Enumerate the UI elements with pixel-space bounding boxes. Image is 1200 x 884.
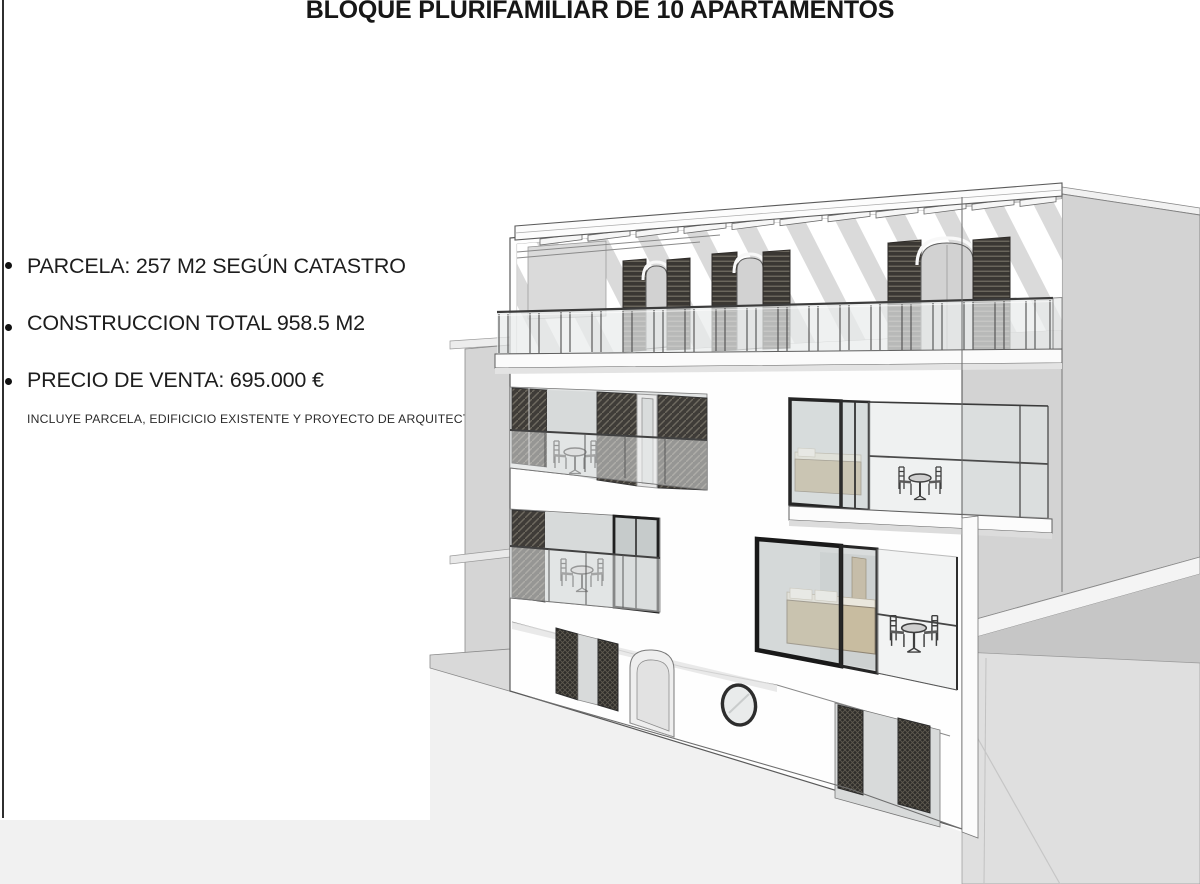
roof-terrace (495, 183, 1062, 374)
floor1-left-balcony (510, 509, 660, 612)
building-3d-render (0, 0, 1200, 884)
slide: BLOQUE PLURIFAMILIAR DE 10 APARTAMENTOS … (0, 0, 1200, 884)
floor2-glass-balcony-box (789, 399, 1052, 539)
entrance-arch-door (630, 650, 674, 737)
